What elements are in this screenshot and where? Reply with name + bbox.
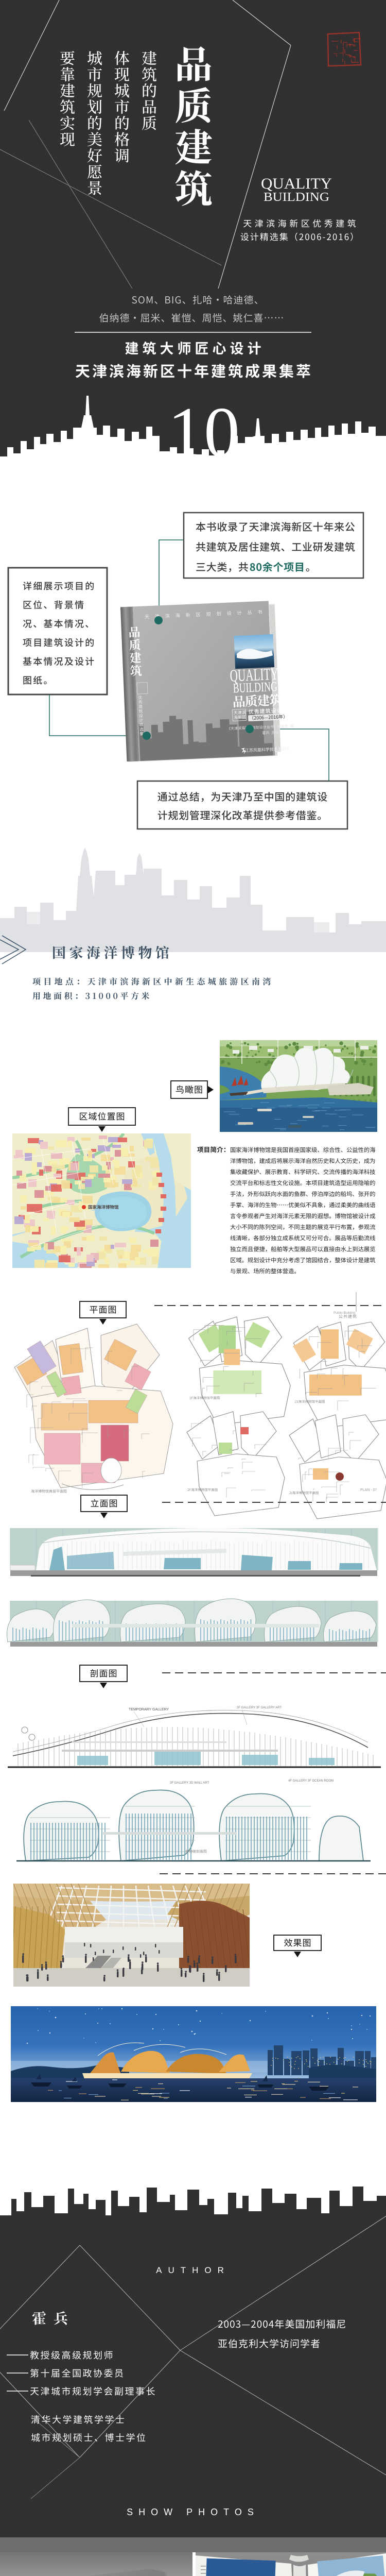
- svg-text:3F GALLERY 3D WALL ART: 3F GALLERY 3D WALL ART: [170, 1782, 209, 1785]
- svg-text:AUTHOR: AUTHOR: [156, 2265, 230, 2275]
- svg-text:SHOW PHOTOS: SHOW PHOTOS: [127, 2507, 259, 2517]
- svg-text:BUILDING: BUILDING: [233, 679, 277, 696]
- svg-text:4F GALLERY 3F OCEAN ROOM: 4F GALLERY 3F OCEAN ROOM: [288, 1780, 334, 1783]
- svg-text:3F GALLERY 3F GALLERY ART: 3F GALLERY 3F GALLERY ART: [237, 1706, 282, 1709]
- svg-text:Public Building: Public Building: [334, 1311, 356, 1315]
- svg-text:PLAN - 07: PLAN - 07: [360, 1488, 377, 1492]
- svg-text:BUILDING: BUILDING: [264, 191, 329, 204]
- svg-text:QUALITY: QUALITY: [261, 175, 332, 192]
- svg-text:TEMPORARY GALLERY: TEMPORARY GALLERY: [129, 1708, 169, 1711]
